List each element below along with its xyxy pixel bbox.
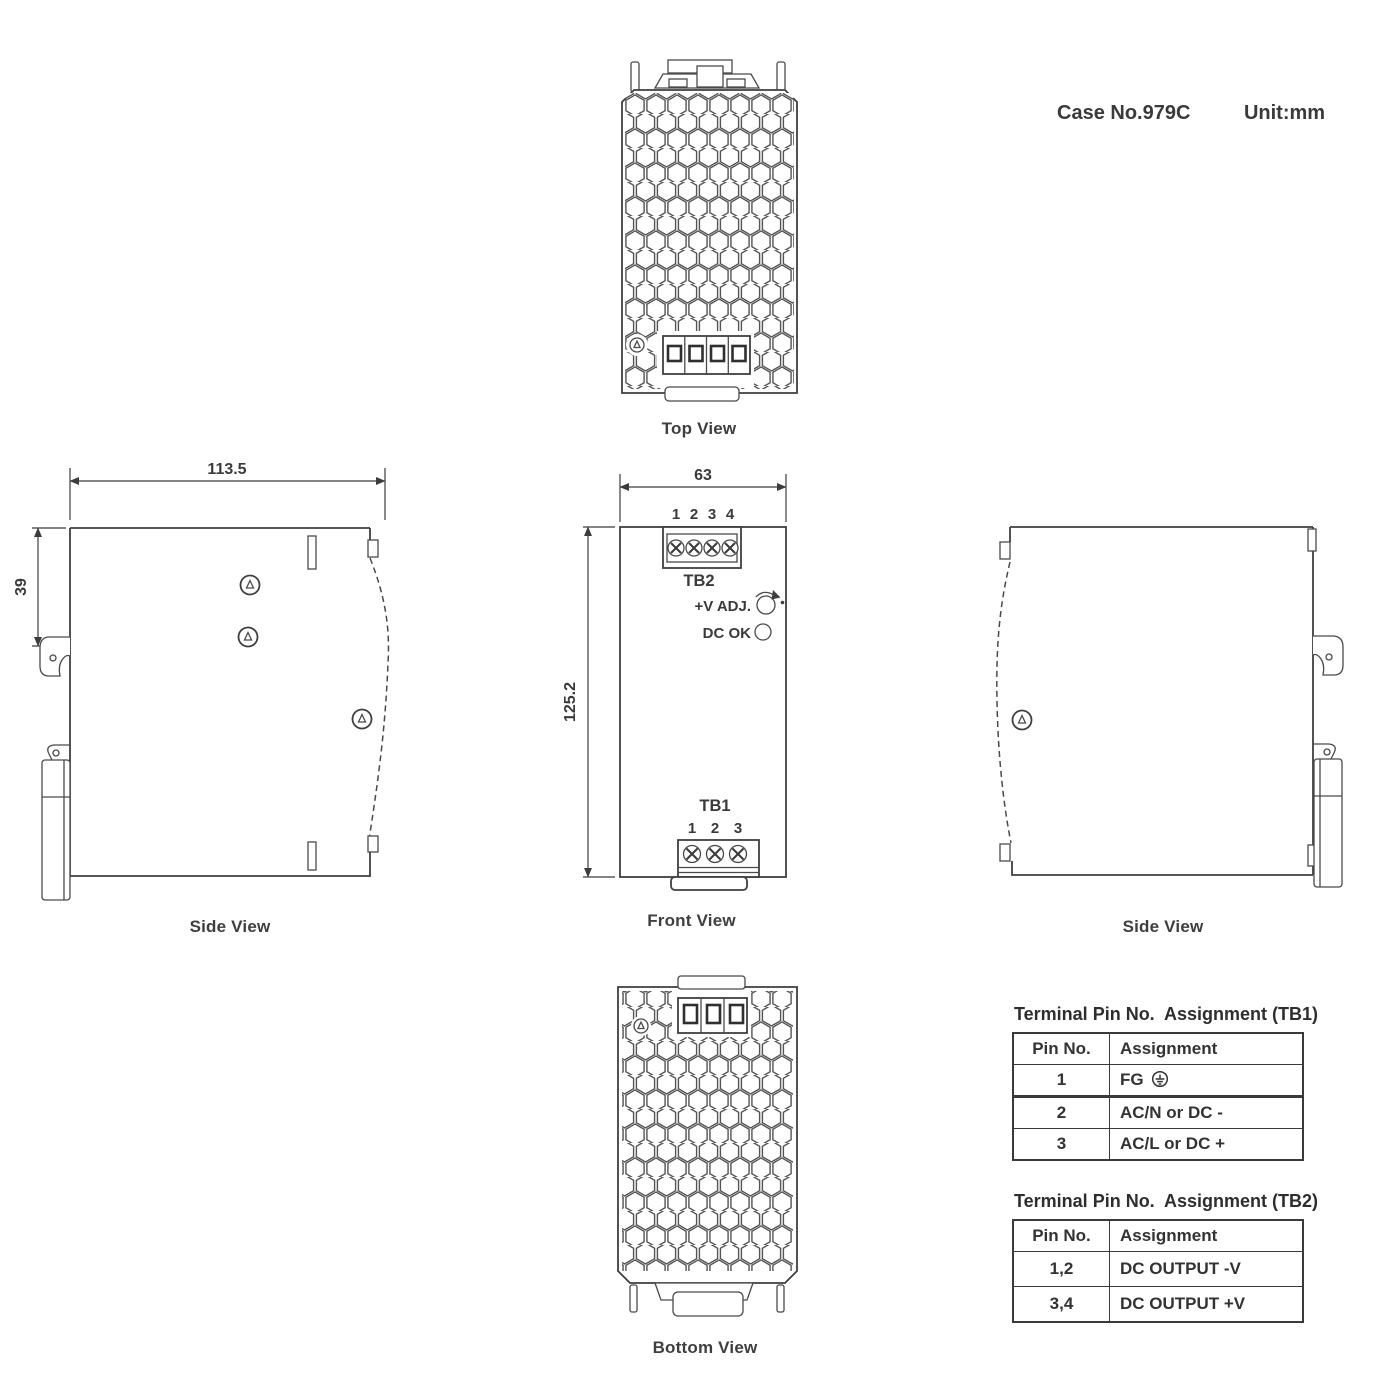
case-screw	[626, 334, 648, 356]
din-clip-bottom	[630, 1283, 784, 1316]
pin-cell: 3,4	[1013, 1287, 1110, 1323]
dc-ok-label: DC OK	[703, 625, 752, 642]
col-header-pin: Pin No.	[1013, 1220, 1110, 1252]
front-view-label: Front View	[578, 911, 805, 931]
pin-cell: 3	[1013, 1129, 1110, 1161]
tb1-table-title: Terminal Pin No. Assignment (TB1)	[1014, 1004, 1322, 1025]
dimension-height: 125.2	[562, 527, 615, 877]
dimension-width: 63	[620, 467, 786, 522]
assignment-cell: DC OUTPUT +V	[1110, 1287, 1304, 1323]
mounting-tab	[671, 877, 747, 890]
pin-cell: 1	[1013, 1065, 1110, 1097]
col-header-pin: Pin No.	[1013, 1033, 1110, 1065]
front-view-drawing: 63 125.2	[555, 450, 805, 892]
tb2-terminal-block-top	[657, 331, 754, 388]
svg-text:3: 3	[708, 506, 716, 523]
svg-text:2: 2	[690, 506, 698, 523]
case-screw	[241, 576, 260, 595]
svg-text:4: 4	[726, 506, 735, 523]
side-view-left: 113.5 39	[18, 448, 442, 937]
svg-text:125.2: 125.2	[562, 682, 579, 722]
dimension-39: 39	[13, 528, 74, 646]
dc-ok-led: DC OK	[703, 624, 771, 642]
front-view: 63 125.2	[555, 450, 805, 931]
tb2-pin-numbers: 1 2 3 4	[672, 506, 735, 523]
svg-text:1: 1	[672, 506, 680, 523]
svg-text:2: 2	[711, 820, 719, 837]
svg-text:1: 1	[688, 820, 696, 837]
mechanical-drawing-page: Case No.979C Unit:mm	[0, 0, 1400, 1400]
side-view-left-drawing: 113.5 39	[18, 448, 442, 910]
tb1-label: TB1	[699, 797, 730, 815]
svg-text:113.5: 113.5	[207, 461, 246, 478]
col-header-assignment: Assignment	[1110, 1220, 1304, 1252]
pin-cell: 1,2	[1013, 1252, 1110, 1287]
vent-slot-top	[308, 536, 316, 569]
assignment-cell: DC OUTPUT -V	[1110, 1252, 1304, 1287]
tb2-label: TB2	[683, 572, 714, 590]
table-row: 3 AC/L or DC +	[1013, 1129, 1303, 1161]
terminal-screws	[684, 846, 747, 863]
dimension-width: 113.5	[70, 461, 385, 520]
table-header-row: Pin No. Assignment	[1013, 1033, 1303, 1065]
side-view-right-label: Side View	[968, 917, 1358, 937]
table-row: 3,4 DC OUTPUT +V	[1013, 1287, 1303, 1323]
bottom-view: Bottom View	[593, 973, 805, 1358]
table-row: 2 AC/N or DC -	[1013, 1097, 1303, 1129]
svg-text:63: 63	[694, 467, 712, 484]
din-rail-clip	[1313, 636, 1343, 887]
case-number: Case No.979C	[1057, 102, 1190, 124]
case-screw	[631, 1016, 651, 1036]
tb2-pin-table: Pin No. Assignment 1,2 DC OUTPUT -V 3,4 …	[1012, 1219, 1304, 1323]
tb1-pin-table: Pin No. Assignment 1 FG 2 AC/N or DC - 3…	[1012, 1032, 1304, 1161]
case-screw	[353, 710, 372, 729]
mounting-tab	[665, 387, 739, 401]
mounting-tab	[678, 976, 745, 989]
assignment-cell: AC/N or DC -	[1110, 1097, 1304, 1129]
side-case-body	[997, 527, 1316, 875]
col-header-assignment: Assignment	[1110, 1033, 1304, 1065]
side-view-left-label: Side View	[18, 917, 442, 937]
assignment-cell: FG	[1110, 1065, 1304, 1097]
tb1-terminal-block-bottom	[672, 990, 751, 1037]
bottom-view-label: Bottom View	[605, 1338, 805, 1358]
table-row: 1 FG	[1013, 1065, 1303, 1097]
assignment-cell: AC/L or DC +	[1110, 1129, 1304, 1161]
case-screw	[1013, 711, 1032, 730]
svg-text:3: 3	[734, 820, 742, 837]
top-view-drawing	[593, 46, 805, 408]
pin-assignment-tables: Terminal Pin No. Assignment (TB1) Pin No…	[1012, 1004, 1322, 1353]
din-clip-top	[631, 60, 785, 92]
table-header-row: Pin No. Assignment	[1013, 1220, 1303, 1252]
case-screw	[239, 628, 258, 647]
side-view-right: Side View	[968, 448, 1358, 937]
earth-ground-icon	[1151, 1070, 1169, 1088]
bottom-view-drawing	[593, 973, 805, 1323]
side-view-right-drawing	[968, 448, 1358, 910]
tb2-terminal-block	[663, 527, 741, 568]
tb1-pin-numbers: 1 2 3	[688, 820, 742, 837]
tb2-table-title: Terminal Pin No. Assignment (TB2)	[1014, 1191, 1322, 1212]
din-rail-clip	[40, 637, 70, 900]
assignment-text: FG	[1120, 1070, 1144, 1089]
tb1-terminal-block	[671, 840, 759, 890]
drawing-header-note: Case No.979C Unit:mm	[1057, 102, 1325, 125]
unit-note: Unit:mm	[1244, 102, 1325, 124]
table-row: 1,2 DC OUTPUT -V	[1013, 1252, 1303, 1287]
svg-text:39: 39	[13, 578, 30, 596]
side-case-body	[70, 528, 388, 876]
pin-cell: 2	[1013, 1097, 1110, 1129]
top-view: Top View	[593, 46, 805, 439]
vent-slot-bottom	[308, 842, 316, 870]
v-adj-label: +V ADJ.	[694, 598, 751, 615]
led-icon	[755, 624, 771, 640]
top-view-label: Top View	[593, 419, 805, 439]
